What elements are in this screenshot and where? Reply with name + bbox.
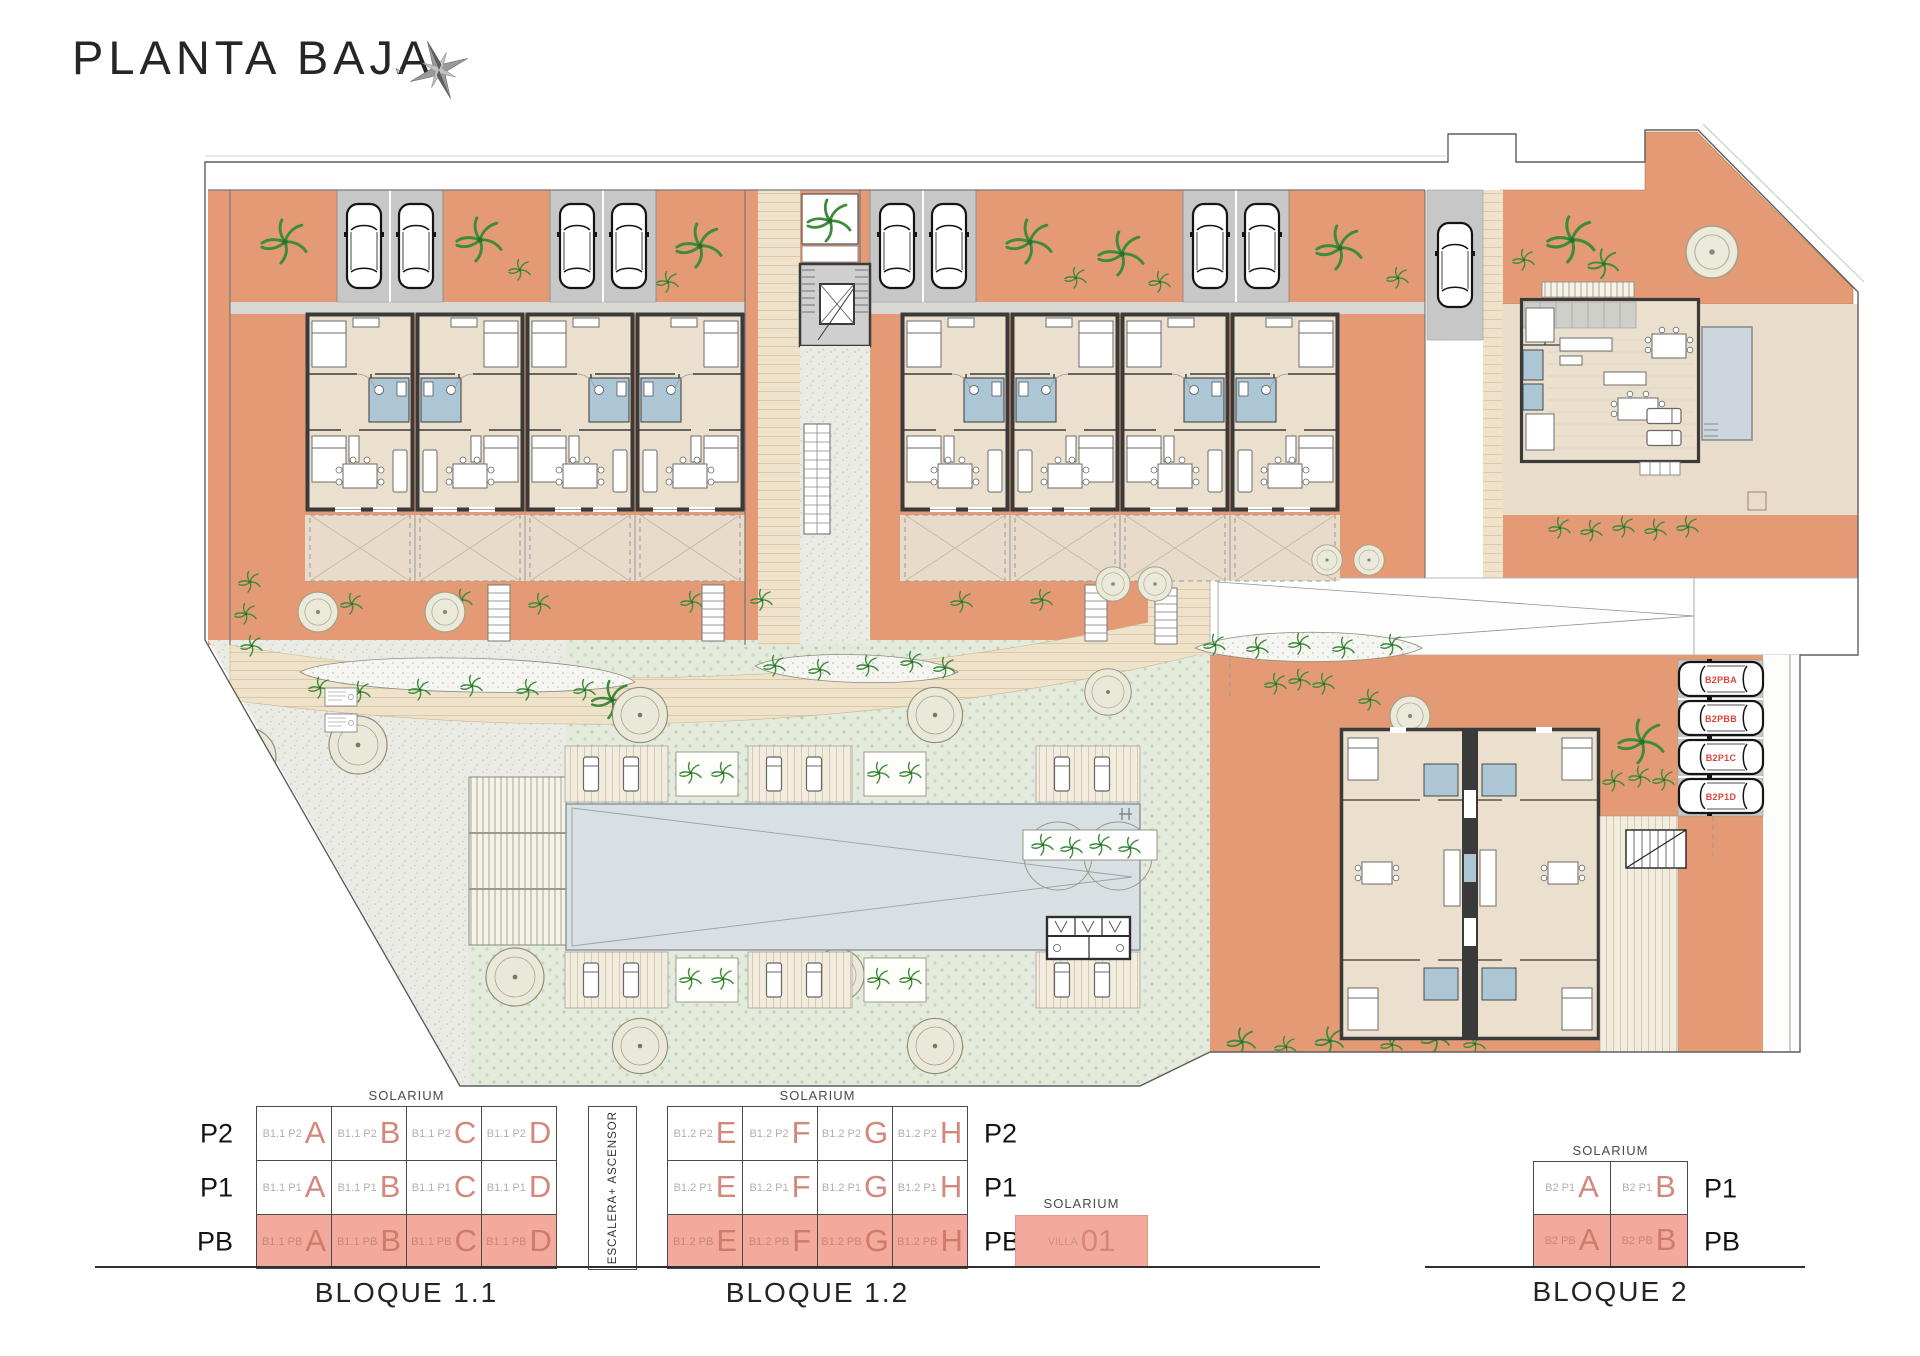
block-caption: BLOQUE 2 xyxy=(1493,1276,1728,1308)
legend-unit-cell: B1.1 PBB xyxy=(332,1215,407,1269)
parking-space-label: B2PBB xyxy=(1705,714,1737,724)
villa-solarium-label: SOLARIUM xyxy=(1015,1196,1148,1211)
legend-unit-cell: B1.1 P1B xyxy=(332,1161,407,1215)
legend-unit-cell: B1.2 P2E xyxy=(668,1107,743,1161)
legend-unit-cell: B1.2 P1E xyxy=(668,1161,743,1215)
ground-line xyxy=(95,1266,1320,1268)
legend-unit-cell: B1.1 P2D xyxy=(482,1107,557,1161)
floor-label: P1 xyxy=(984,1173,1017,1204)
floor-label: PB xyxy=(1704,1226,1740,1257)
legend-unit-cell: B2 PBA xyxy=(1534,1215,1611,1268)
villa-building xyxy=(1522,300,1699,476)
legend-unit-cell: B1.1 P1D xyxy=(482,1161,557,1215)
bloque-2-building xyxy=(1342,727,1599,1039)
pergola xyxy=(469,777,566,945)
legend-unit-cell: B1.2 P1G xyxy=(818,1161,893,1215)
villa-code: VILLA xyxy=(1048,1236,1078,1248)
legend-unit-cell: B1.1 P2B xyxy=(332,1107,407,1161)
legend-stair-elevator-box: ESCALERA+ ASCENSOR xyxy=(588,1106,637,1270)
legend-unit-cell: B1.1 PBA xyxy=(257,1215,332,1269)
legend-unit-cell: B2 P1B xyxy=(1611,1162,1688,1215)
legend-bloque-1-1: SOLARIUMB1.1 P2AB1.1 P2BB1.1 P2CB1.1 P2D… xyxy=(256,1106,557,1269)
legend-unit-cell: B2 P1A xyxy=(1534,1162,1611,1215)
car-icon xyxy=(1190,204,1230,288)
solarium-label: SOLARIUM xyxy=(667,1088,968,1103)
legend-unit-cell: B1.2 PBG xyxy=(818,1215,893,1269)
legend-unit-cell: B1.2 P2H xyxy=(893,1107,968,1161)
legend-unit-cell: B1.1 PBC xyxy=(407,1215,482,1269)
floor-label: PB xyxy=(197,1227,233,1258)
legend-unit-cell: B1.1 P2A xyxy=(257,1107,332,1161)
car-icon xyxy=(344,204,384,288)
villa-number: 01 xyxy=(1081,1225,1115,1256)
legend-unit-cell: B1.2 PBF xyxy=(743,1215,818,1269)
floor-plan-page: PLANTA BAJA N xyxy=(0,0,1920,1356)
legend-unit-cell: B1.2 P1H xyxy=(893,1161,968,1215)
solarium-label: SOLARIUM xyxy=(1533,1143,1688,1158)
legend-unit-cell: B1.1 P1A xyxy=(257,1161,332,1215)
car-icon xyxy=(929,204,969,288)
bloque-2-entry-stairs xyxy=(1626,830,1686,868)
legend-unit-cell: B1.2 PBE xyxy=(668,1215,743,1269)
car-icon xyxy=(557,204,597,288)
legend-bloque-1-2: SOLARIUMB1.2 P2EB1.2 P2FB1.2 P2GB1.2 P2H… xyxy=(667,1106,968,1269)
stair-elevator-label: ESCALERA+ ASCENSOR xyxy=(607,1111,619,1264)
legend-unit-cell: B1.2 PBH xyxy=(893,1215,968,1269)
legend-unit-cell: B1.1 P1C xyxy=(407,1161,482,1215)
ground-line xyxy=(1425,1266,1805,1268)
parking-space-label: B2P1D xyxy=(1706,792,1737,802)
solarium-label: SOLARIUM xyxy=(256,1088,557,1103)
floor-label: P2 xyxy=(984,1119,1017,1150)
parking-space-label: B2PBA xyxy=(1705,675,1737,685)
hedge xyxy=(1542,282,1634,297)
car-icon xyxy=(396,204,436,288)
car-icon xyxy=(1242,204,1282,288)
floor-label: P2 xyxy=(200,1119,233,1150)
floor-label: P1 xyxy=(200,1173,233,1204)
legend-unit-cell: B1.2 P1F xyxy=(743,1161,818,1215)
parking-space-label: B2P1C xyxy=(1706,753,1737,763)
legend-unit-cell: B1.2 P2F xyxy=(743,1107,818,1161)
car-icon xyxy=(609,204,649,288)
legend-unit-cell: B1.2 P2G xyxy=(818,1107,893,1161)
legend-bloque-2: SOLARIUMB2 P1AB2 P1BP1B2 PBAB2 PBBPBBLOQ… xyxy=(1533,1161,1688,1268)
floor-label: P1 xyxy=(1704,1173,1737,1204)
block-caption: BLOQUE 1.2 xyxy=(627,1277,1008,1309)
central-path xyxy=(758,190,800,645)
block-caption: BLOQUE 1.1 xyxy=(216,1277,597,1309)
villa-garden xyxy=(1500,132,1853,304)
legend-villa-cell: VILLA 01 xyxy=(1015,1215,1148,1268)
car-icon xyxy=(1435,223,1475,307)
legend-unit-cell: B2 PBB xyxy=(1611,1215,1688,1268)
legend-unit-cell: B1.1 P2C xyxy=(407,1107,482,1161)
car-icon xyxy=(877,204,917,288)
legend-unit-cell: B1.1 PBD xyxy=(482,1215,557,1269)
